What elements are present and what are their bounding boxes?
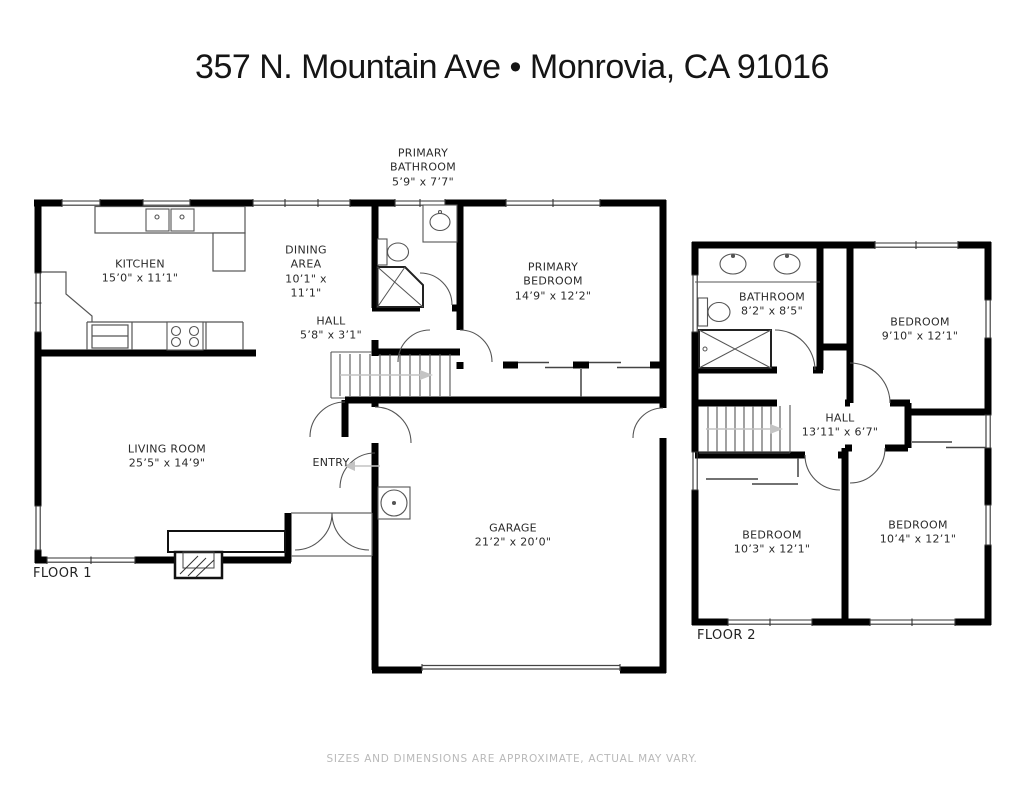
primary-bath-vanity-sink-icon [423, 205, 457, 242]
room-label-hall-floor2: HALL 13’11" x 6’7" [780, 412, 900, 441]
room-label-kitchen: KITCHEN 15’0" x 11’1" [75, 258, 205, 287]
disclaimer-text: SIZES AND DIMENSIONS ARE APPROXIMATE, AC… [0, 753, 1024, 765]
room-label-dining-area: DINING AREA 10’1" x 11’1" [274, 243, 338, 300]
stove-icon [167, 322, 203, 350]
bathroom2-vanity-sinks-icon [695, 254, 820, 282]
floor1-tag: FLOOR 1 [33, 566, 92, 581]
floorplan-page: 357 N. Mountain Ave • Monrovia, CA 91016 [0, 0, 1024, 791]
room-label-entry: ENTRY [301, 456, 361, 470]
stairs-direction-arrow [340, 370, 433, 380]
floorplan-drawing [0, 0, 1024, 791]
room-label-garage: GARAGE 21’2" x 20’0" [448, 522, 578, 551]
room-label-bedroom-top: BEDROOM 9’10" x 12’1" [865, 316, 975, 345]
garage-door [422, 664, 620, 671]
floor2-tag: FLOOR 2 [697, 628, 756, 643]
room-label-hall-floor1: HALL 5’8" x 3’1" [286, 315, 376, 344]
room-label-bedroom-left: BEDROOM 10’3" x 12’1" [717, 529, 827, 558]
room-label-primary-bedroom: PRIMARY BEDROOM 14’9" x 12’2" [513, 261, 593, 304]
room-label-living-room: LIVING ROOM 25’5" x 14’9" [97, 443, 237, 472]
door-arcs-floor2 [775, 330, 890, 490]
room-label-bedroom-right: BEDROOM 10’4" x 12’1" [863, 519, 973, 548]
primary-bath-toilet-icon [378, 239, 409, 265]
primary-bath-shower-icon [378, 267, 424, 307]
room-label-primary-bathroom: PRIMARY BATHROOM 5’9" x 7’7" [378, 147, 468, 190]
bathtub-icon [699, 330, 771, 368]
water-heater-icon [378, 487, 410, 519]
fireplace-icon [168, 531, 285, 578]
room-label-bathroom-floor2: BATHROOM 8’2" x 8’5" [717, 291, 827, 320]
